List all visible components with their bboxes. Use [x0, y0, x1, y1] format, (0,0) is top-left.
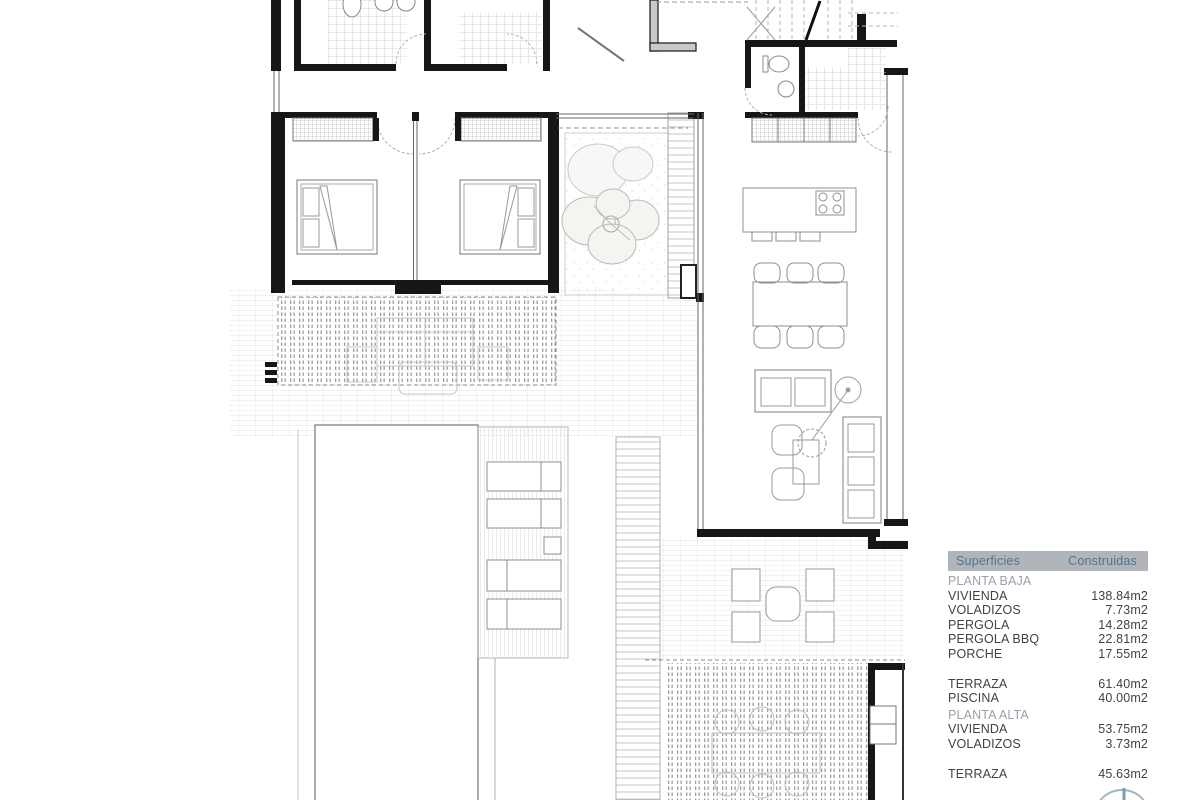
coffee-table	[793, 440, 819, 484]
chair	[754, 326, 780, 348]
chair	[806, 612, 834, 642]
table-row: VIVIENDA138.84m2	[948, 589, 1148, 604]
col-construidas: Construidas	[1068, 554, 1137, 568]
table-row: TERRAZA45.63m2	[948, 767, 1148, 782]
chair	[818, 263, 844, 283]
side-table	[766, 587, 800, 621]
chair	[732, 612, 760, 642]
chair	[787, 263, 813, 283]
pool-area	[298, 425, 660, 800]
wardrobe	[461, 118, 541, 141]
kitchen	[743, 188, 856, 241]
table-row: PLANTA BAJA	[948, 574, 1148, 589]
pergola	[265, 297, 556, 394]
table-row: PERGOLA BBQ22.81m2	[948, 632, 1148, 647]
dining-table	[753, 282, 847, 326]
surfaces-table-header: Superficies Construidas	[948, 551, 1148, 571]
bbq-counter	[870, 706, 896, 744]
chair	[806, 569, 834, 601]
surfaces-table: Superficies Construidas PLANTA BAJA VIVI…	[948, 551, 1148, 781]
entry-pillar	[650, 0, 696, 51]
walkway-strip	[616, 437, 660, 800]
table-row: VOLADIZOS3.73m2	[948, 737, 1148, 752]
living-room	[755, 370, 881, 523]
courtyard	[562, 113, 696, 298]
pool	[315, 425, 478, 800]
table-row: PORCHE17.55m2	[948, 647, 1148, 662]
col-superficies: Superficies	[956, 554, 1020, 568]
toilet	[769, 56, 789, 72]
chair	[732, 569, 760, 601]
table-row: PERGOLA14.28m2	[948, 618, 1148, 633]
table-row: PLANTA ALTA	[948, 708, 1148, 723]
chair	[787, 326, 813, 348]
floor-plan-sheet: Superficies Construidas PLANTA BAJA VIVI…	[0, 0, 1200, 800]
bed	[297, 180, 377, 254]
chair	[754, 263, 780, 283]
chimney-column	[681, 265, 696, 298]
stairs	[747, 0, 898, 40]
sink	[778, 81, 794, 97]
table-row: VIVIENDA53.75m2	[948, 722, 1148, 737]
bbq-wall	[868, 663, 905, 800]
surfaces-table-rows: PLANTA BAJA VIVIENDA138.84m2 VOLADIZOS7.…	[948, 574, 1148, 781]
table-row: VOLADIZOS7.73m2	[948, 603, 1148, 618]
table-row: TERRAZA61.40m2	[948, 677, 1148, 692]
table-row: PISCINA40.00m2	[948, 691, 1148, 706]
wardrobe	[293, 118, 373, 141]
pergola-bbq	[645, 660, 905, 800]
stair-break-line	[806, 1, 820, 40]
chair	[818, 326, 844, 348]
north-compass-icon	[1094, 788, 1150, 800]
toilet-tank	[763, 56, 768, 72]
dining	[753, 263, 847, 348]
entry-door	[578, 28, 624, 61]
garden-steps	[265, 362, 277, 383]
bed	[460, 180, 540, 254]
